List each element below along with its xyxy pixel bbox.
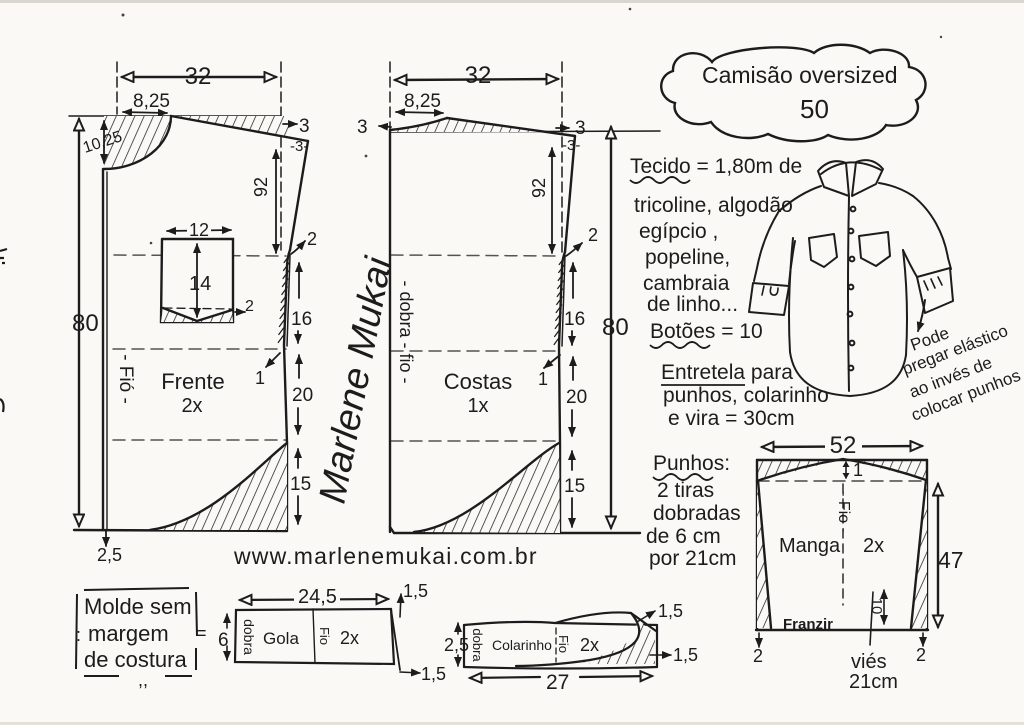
svg-text:Gola: Gola (263, 629, 299, 648)
svg-text:- Fio -: - Fio - (835, 491, 852, 533)
svg-text:2x: 2x (580, 635, 599, 655)
svg-text:dobra: dobra (241, 619, 257, 655)
svg-text:2x: 2x (863, 535, 884, 557)
svg-text:2,5: 2,5 (444, 635, 469, 655)
svg-text:80: 80 (72, 310, 99, 337)
svg-text:Botões = 10: Botões = 10 (650, 320, 763, 343)
svg-text:16: 16 (564, 309, 585, 330)
svg-text:2x: 2x (181, 395, 202, 417)
svg-text:20: 20 (566, 387, 587, 408)
svg-text:Fio: Fio (317, 627, 332, 645)
svg-text:10: 10 (868, 598, 885, 615)
svg-text:20: 20 (292, 385, 313, 406)
svg-text:1,5: 1,5 (403, 581, 428, 601)
svg-text:Entretela para: Entretela para (661, 361, 793, 384)
svg-text:92: 92 (251, 177, 271, 197)
svg-text:14: 14 (189, 273, 211, 295)
svg-text:egípcio ,: egípcio , (639, 220, 718, 243)
svg-text:de 6 cm: de 6 cm (646, 525, 721, 548)
svg-text:92: 92 (529, 178, 549, 198)
svg-text:24,5: 24,5 (298, 586, 337, 608)
svg-text:,,: ,, (138, 670, 148, 690)
svg-text:Colarinho: Colarinho (492, 637, 552, 653)
svg-text:dobradas: dobradas (653, 502, 741, 525)
svg-text:www.marlenemukai.com.br: www.marlenemukai.com.br (233, 543, 538, 569)
svg-text:Fio: Fio (556, 635, 571, 653)
svg-text:47: 47 (938, 547, 964, 573)
svg-text:32: 32 (465, 62, 492, 89)
svg-text:tricoline, algodão: tricoline, algodão (634, 194, 793, 217)
svg-text:popeline,: popeline, (645, 246, 730, 269)
svg-text:Camisão oversized: Camisão oversized (702, 62, 898, 88)
svg-text:2 tiras: 2 tiras (657, 479, 714, 502)
svg-text:punhos, colarinho: punhos, colarinho (663, 384, 829, 407)
svg-text:Costas: Costas (444, 369, 512, 394)
svg-text:- dobra - fio -: - dobra - fio - (396, 280, 416, 383)
svg-text:15: 15 (564, 476, 585, 497)
svg-text:cambraia: cambraia (643, 272, 730, 295)
svg-text:2: 2 (307, 229, 317, 249)
svg-text:50: 50 (800, 94, 829, 124)
svg-text:2x: 2x (340, 628, 359, 648)
svg-text:margem: margem (88, 621, 169, 646)
svg-text:-3-: -3- (562, 137, 580, 154)
svg-text:1,5: 1,5 (658, 601, 683, 621)
svg-text:32: 32 (185, 63, 212, 90)
svg-text:1x: 1x (467, 395, 488, 417)
svg-text:2: 2 (753, 646, 763, 666)
svg-text:Molde sem: Molde sem (84, 594, 192, 619)
svg-text:e vira = 30cm: e vira = 30cm (668, 407, 795, 430)
svg-text:- Fió -: - Fió - (115, 354, 136, 404)
svg-text:2: 2 (916, 645, 926, 665)
svg-text:8,25: 8,25 (404, 91, 441, 112)
svg-text:Tecido = 1,80m de: Tecido = 1,80m de (630, 155, 802, 178)
svg-text::: : (76, 625, 81, 645)
svg-text:2: 2 (588, 225, 598, 245)
svg-text:=: = (196, 623, 207, 643)
svg-text:1: 1 (255, 368, 265, 388)
svg-text:de costura: de costura (84, 647, 187, 672)
svg-text:3: 3 (299, 116, 310, 137)
svg-text:8,25: 8,25 (133, 91, 170, 112)
svg-text:de linho...: de linho... (647, 293, 738, 316)
svg-text:21cm: 21cm (849, 671, 898, 693)
svg-text:Punhos:: Punhos: (653, 452, 730, 475)
svg-text:-3-: -3- (290, 138, 308, 155)
svg-text:1,5: 1,5 (421, 664, 446, 684)
svg-text:3: 3 (357, 117, 368, 138)
svg-text:Manga: Manga (779, 535, 841, 557)
svg-text:3: 3 (575, 118, 586, 139)
svg-text:2,5: 2,5 (97, 545, 122, 565)
svg-text:viés: viés (851, 651, 887, 673)
svg-text:15: 15 (290, 474, 311, 495)
svg-text:dobra: dobra (470, 628, 485, 662)
svg-text:Franzir: Franzir (783, 616, 833, 633)
svg-text:27: 27 (546, 671, 569, 694)
svg-text:52: 52 (830, 432, 857, 459)
svg-text:16: 16 (291, 309, 312, 330)
svg-text:2: 2 (245, 298, 254, 315)
svg-text:1: 1 (538, 369, 548, 389)
svg-text:por 21cm: por 21cm (649, 547, 737, 570)
svg-text:Frente: Frente (161, 369, 225, 394)
svg-text:1: 1 (853, 460, 863, 480)
svg-text:80: 80 (602, 314, 629, 341)
svg-text:12: 12 (189, 220, 209, 240)
svg-text:1,5: 1,5 (673, 645, 698, 665)
